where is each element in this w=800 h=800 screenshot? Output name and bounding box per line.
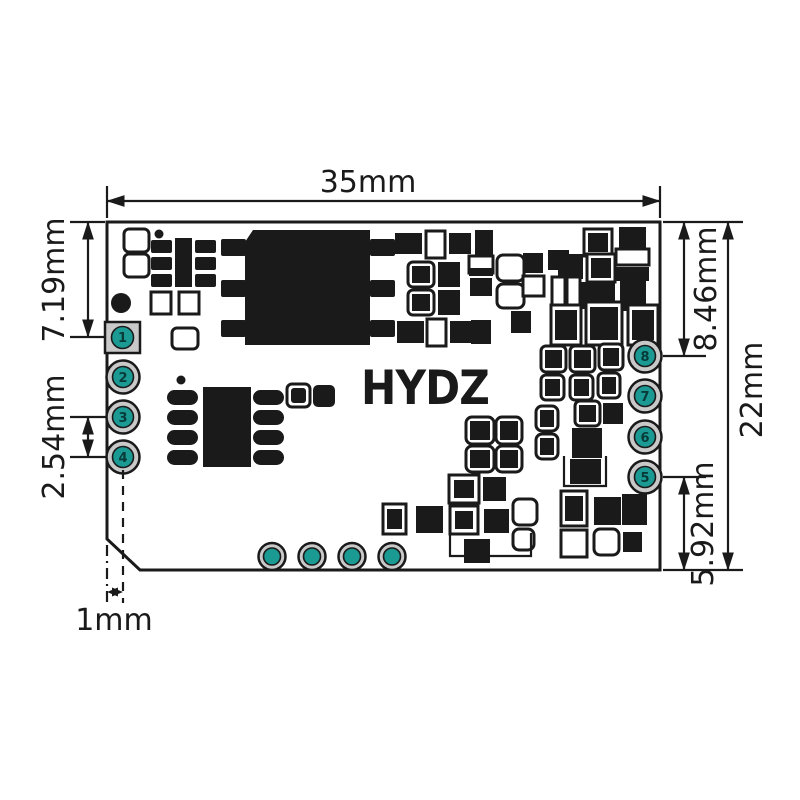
diagram-canvas: HYDZ 1 2 3 4 8 7 6 5 [0,0,800,800]
pcb-dimension-diagram: HYDZ 1 2 3 4 8 7 6 5 [0,0,800,800]
pad-2: 2 [107,361,140,394]
pad-3-label: 3 [118,411,127,426]
pad-8-label: 8 [640,350,649,365]
pad-2-label: 2 [118,371,127,386]
pad-7-label: 7 [640,390,649,405]
dim-pin8-top-offset-label: 8.46mm [689,226,724,351]
dim-pin1-top-offset: 7.19mm [37,217,105,342]
dim-pin5-bottom-offset: 5.92mm [663,461,743,586]
pad-4: 4 [107,441,140,474]
pad-6: 6 [629,421,662,454]
dim-pin5-bottom-offset-label: 5.92mm [686,461,721,586]
ic-main [221,230,395,345]
pad-4-label: 4 [118,451,127,466]
pad-7: 7 [629,380,662,413]
dim-pin-pitch: 2.54mm [37,374,106,499]
pad-5-label: 5 [640,471,649,486]
logo-text: HYDZ [361,361,489,416]
pad-8: 8 [629,340,662,373]
dim-pin-pitch-label: 2.54mm [37,374,72,499]
dim-board-width-label: 35mm [320,165,417,200]
pad-5: 5 [629,461,662,494]
dim-board-height-label: 22mm [735,342,770,439]
dim-board-height: 22mm [728,222,770,570]
pad-3: 3 [107,401,140,434]
dim-pad-edge-offset-label: 1mm [75,603,153,638]
pad-6-label: 6 [640,431,649,446]
pad-1: 1 [105,322,140,353]
dim-pin8-top-offset: 8.46mm [663,222,743,356]
dim-pin1-top-offset-label: 7.19mm [37,217,72,342]
pad-1-label: 1 [118,331,127,346]
dim-board-width: 35mm [107,165,660,218]
